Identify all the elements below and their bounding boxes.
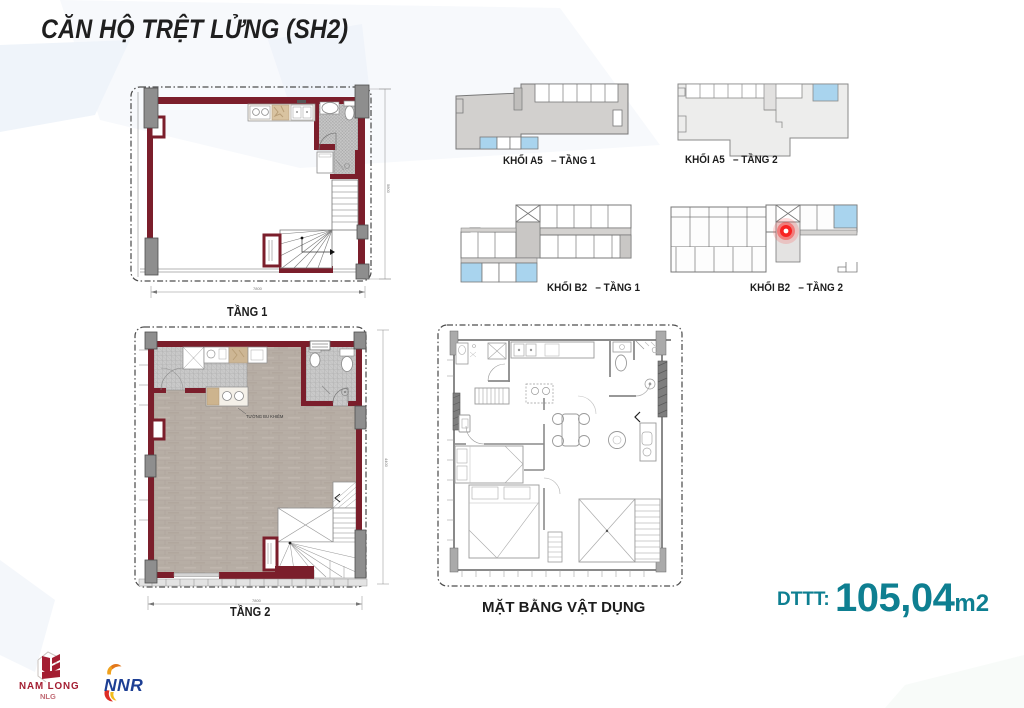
svg-text:TƯỜNG BU KHIÊM: TƯỜNG BU KHIÊM [246, 414, 284, 419]
svg-text:5800: 5800 [386, 184, 391, 194]
svg-text:NNR: NNR [104, 675, 143, 695]
svg-text:4400: 4400 [384, 458, 389, 468]
svg-text:NLG: NLG [40, 692, 56, 701]
svg-text:7800: 7800 [253, 286, 263, 291]
svg-text:7800: 7800 [252, 598, 262, 603]
svg-text:NAM LONG: NAM LONG [19, 681, 80, 692]
